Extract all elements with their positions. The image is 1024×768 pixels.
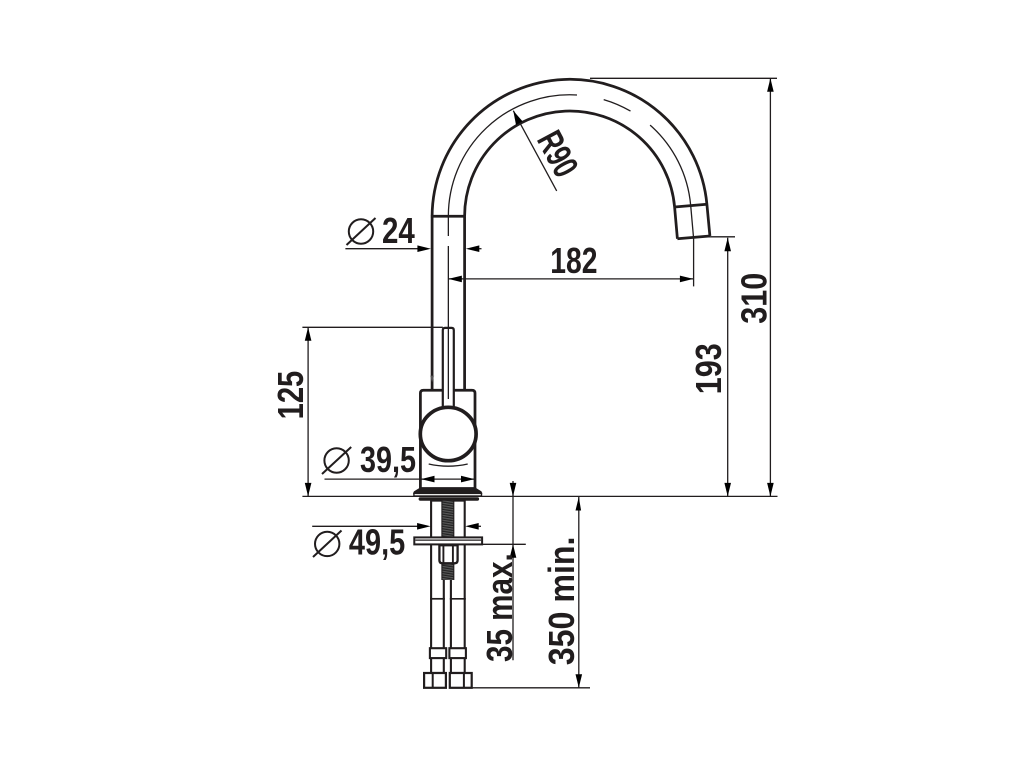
svg-text:24: 24: [382, 211, 415, 251]
svg-text:39,5: 39,5: [360, 440, 416, 480]
svg-text:193: 193: [689, 343, 729, 394]
svg-text:125: 125: [271, 371, 311, 420]
svg-text:35 max.: 35 max.: [480, 553, 520, 662]
svg-text:310: 310: [735, 273, 775, 324]
svg-text:350 min.: 350 min.: [542, 537, 582, 666]
svg-text:49,5: 49,5: [349, 522, 405, 562]
svg-text:182: 182: [550, 241, 597, 281]
